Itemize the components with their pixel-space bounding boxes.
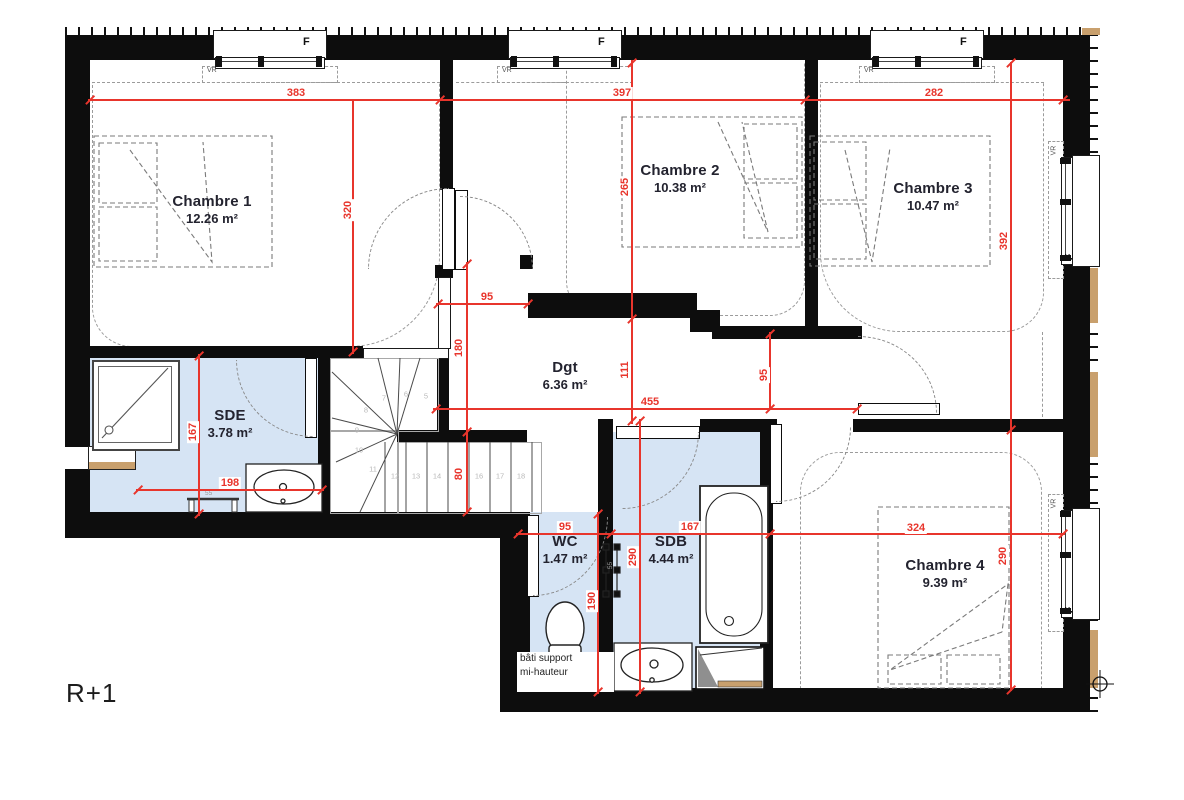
window-glazing-line xyxy=(217,61,321,62)
dimension-label: 95 xyxy=(557,521,573,533)
window-hinge xyxy=(511,56,517,67)
dimension-label: 383 xyxy=(285,87,307,99)
room-name: Dgt xyxy=(543,359,588,376)
room-area: 6.36 m² xyxy=(543,376,588,394)
window-hinge xyxy=(1060,552,1071,558)
window-vr-label: VR xyxy=(1050,146,1057,156)
radiator-label: 55 xyxy=(607,562,614,569)
room-name: SDB xyxy=(649,533,694,550)
room-label-wc: WC1.47 m² xyxy=(543,533,588,568)
window-hinge xyxy=(316,56,322,67)
room-area: 12.26 m² xyxy=(172,210,251,228)
dimension-line xyxy=(639,419,641,694)
window-glazing xyxy=(872,57,982,69)
window-hinge xyxy=(1060,158,1071,164)
room-area: 1.47 m² xyxy=(543,550,588,568)
window-glazing-line xyxy=(1065,159,1066,261)
towel-radiator xyxy=(603,544,620,597)
window-hinge xyxy=(915,56,921,67)
room-name: Chambre 4 xyxy=(905,557,984,574)
room-area: 4.44 m² xyxy=(649,550,694,568)
dimension-label: 265 xyxy=(619,176,631,198)
window-vr-label: VR xyxy=(207,67,217,74)
stair-tread-number: 18 xyxy=(517,472,525,481)
stair-tread-number: 16 xyxy=(475,472,483,481)
dimension-line xyxy=(352,100,354,354)
window-hinge xyxy=(1060,199,1071,205)
dimension-label: 324 xyxy=(905,522,927,534)
room-area: 3.78 m² xyxy=(208,424,253,442)
dimension-label: 320 xyxy=(342,199,354,221)
dimension-line xyxy=(436,303,530,305)
room-name: Chambre 1 xyxy=(172,193,251,210)
dimension-line xyxy=(1010,62,1012,691)
dimension-label: 95 xyxy=(479,291,495,303)
sde-sink xyxy=(246,464,322,512)
window-f-label: F xyxy=(598,36,605,48)
dimension-label: 190 xyxy=(586,590,598,612)
dimension-line xyxy=(466,262,468,514)
toilet-note-line1: bâti support xyxy=(520,652,614,666)
dimension-label: 290 xyxy=(627,546,639,568)
toilet-note-line2: mi-hauteur xyxy=(520,666,614,680)
dimension-label: 455 xyxy=(639,396,661,408)
dimension-label: 282 xyxy=(923,87,945,99)
radiator-label: 55 xyxy=(205,490,212,497)
stair-tread-number: 7 xyxy=(382,394,386,403)
window-f-label: F xyxy=(303,36,310,48)
window-vr-label: VR xyxy=(1050,499,1057,509)
bathtub xyxy=(700,486,768,643)
stair-tread-number: 17 xyxy=(496,472,504,481)
floor-level-label: R+1 xyxy=(66,678,117,709)
room-label-chambre-3: Chambre 310.47 m² xyxy=(893,180,972,215)
sde-bench xyxy=(187,499,239,512)
stair-tread-number: 5 xyxy=(424,392,428,401)
stair-tread-number: 10 xyxy=(355,446,363,455)
room-area: 10.38 m² xyxy=(640,179,719,197)
room-name: Chambre 3 xyxy=(893,180,972,197)
room-label-chambre-4: Chambre 49.39 m² xyxy=(905,557,984,592)
window-hinge xyxy=(216,56,222,67)
room-label-chambre-1: Chambre 112.26 m² xyxy=(172,193,251,228)
survey-mark xyxy=(1086,670,1114,698)
window-vr-label: VR xyxy=(864,67,874,74)
window-glazing-line xyxy=(874,61,978,62)
dimension-label: 290 xyxy=(997,545,1009,567)
window-hinge xyxy=(873,56,879,67)
room-label-sdb: SDB4.44 m² xyxy=(649,533,694,568)
stair-tread-number: 14 xyxy=(433,472,441,481)
window-vr-label: VR xyxy=(502,67,512,74)
dimension-label: 180 xyxy=(453,337,465,359)
dimension-label: 111 xyxy=(619,359,631,380)
room-area: 9.39 m² xyxy=(905,574,984,592)
dimension-line xyxy=(433,408,859,410)
room-label-sde: SDE3.78 m² xyxy=(208,407,253,442)
room-name: WC xyxy=(543,533,588,550)
sdb-sink xyxy=(614,643,692,691)
dimension-line xyxy=(136,489,324,491)
stair-tread-number: 9 xyxy=(355,426,359,435)
dimension-label: 397 xyxy=(611,87,633,99)
dimension-label: 167 xyxy=(679,521,701,533)
window-f-label: F xyxy=(960,36,967,48)
stair-tread-number: 6 xyxy=(404,390,408,399)
window-sill xyxy=(1072,155,1100,267)
window-glazing-line xyxy=(1065,512,1066,614)
sdb-cabinet xyxy=(696,647,764,689)
room-name: Chambre 2 xyxy=(640,162,719,179)
window-sill xyxy=(1072,508,1100,620)
stair-tread-number: 13 xyxy=(412,472,420,481)
shower-detail xyxy=(102,368,168,438)
window-hinge xyxy=(611,56,617,67)
window-hinge xyxy=(553,56,559,67)
window-glazing-line xyxy=(512,61,616,62)
dimension-line xyxy=(631,60,633,424)
window-hinge xyxy=(258,56,264,67)
room-label-dgt: Dgt6.36 m² xyxy=(543,359,588,394)
dimension-label: 167 xyxy=(187,421,199,443)
window-glazing xyxy=(1061,157,1073,265)
room-name: SDE xyxy=(208,407,253,424)
dimension-label: 392 xyxy=(998,230,1010,252)
toilet-note: bâti support mi-hauteur xyxy=(517,652,614,692)
window-f-label: F xyxy=(1063,607,1075,614)
dimension-label: 198 xyxy=(219,477,241,489)
window-hinge xyxy=(1060,511,1071,517)
window-glazing xyxy=(1061,510,1073,618)
dimension-label: 80 xyxy=(453,466,465,482)
dimension-label: 95 xyxy=(758,367,770,383)
window-glazing xyxy=(510,57,620,69)
room-area: 10.47 m² xyxy=(893,197,972,215)
stair-tread-number: 11 xyxy=(369,465,377,474)
dimension-line xyxy=(88,99,1070,101)
window-glazing xyxy=(215,57,325,69)
window-f-label: F xyxy=(1063,254,1075,261)
stair-tread-number: 12 xyxy=(391,472,399,481)
window-hinge xyxy=(973,56,979,67)
floor-plan: bâti support mi-hauteur 55 55 R+1 383397… xyxy=(0,0,1184,800)
stair-treads xyxy=(332,358,532,512)
room-label-chambre-2: Chambre 210.38 m² xyxy=(640,162,719,197)
stair-tread-number: 8 xyxy=(364,406,368,415)
